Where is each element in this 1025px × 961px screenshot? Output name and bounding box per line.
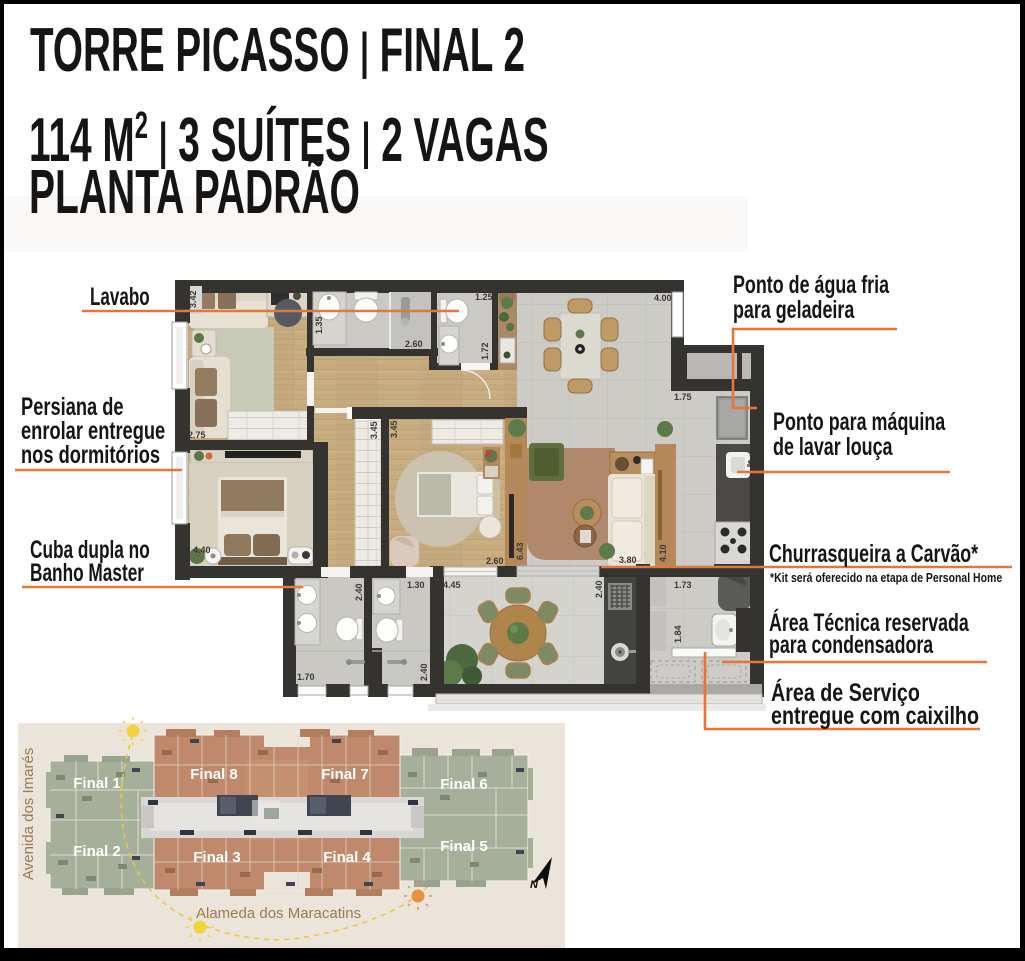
svg-text:N: N xyxy=(530,879,539,891)
svg-text:Alameda dos Maracatins: Alameda dos Maracatins xyxy=(196,905,361,922)
svg-text:Final 8: Final 8 xyxy=(190,766,238,783)
svg-text:Final 1: Final 1 xyxy=(73,775,121,792)
svg-text:Final 5: Final 5 xyxy=(440,838,488,855)
svg-text:Final 6: Final 6 xyxy=(440,776,488,793)
svg-text:Final 2: Final 2 xyxy=(73,843,121,860)
svg-text:Avenida dos Imarés: Avenida dos Imarés xyxy=(20,748,37,880)
svg-text:Final 4: Final 4 xyxy=(323,849,371,866)
svg-text:Final 3: Final 3 xyxy=(193,849,241,866)
svg-text:Final 7: Final 7 xyxy=(321,766,369,783)
